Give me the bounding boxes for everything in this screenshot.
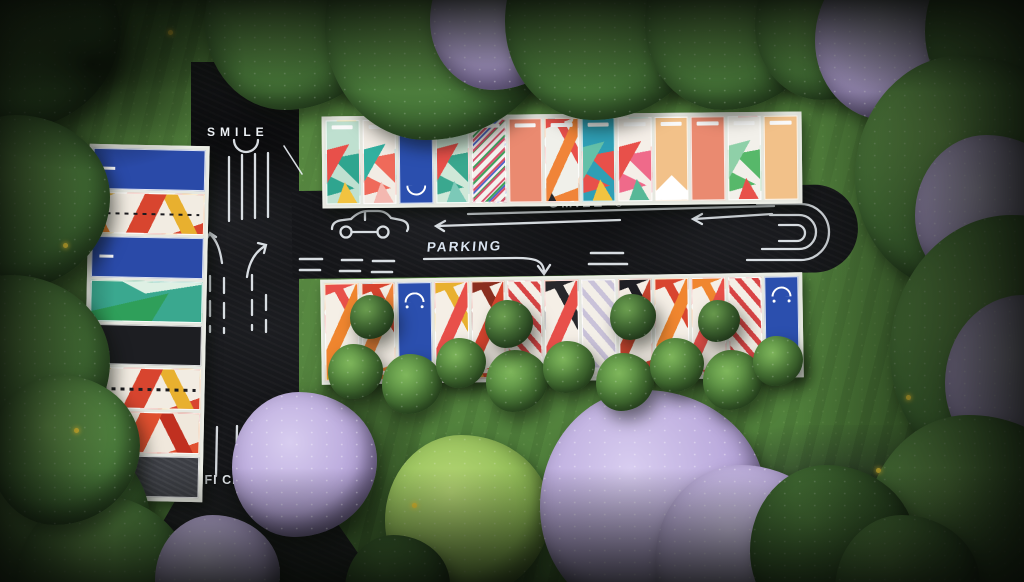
parking-space	[472, 119, 506, 203]
parking-space	[89, 323, 202, 366]
parking-lot-aerial-scene: SMILE SMILE☺ PARKING CIFI CENTER	[0, 0, 1024, 582]
cifi-center-road-text: CIFI CENTER	[190, 473, 279, 487]
parking-space	[434, 281, 469, 379]
parking-space	[88, 367, 201, 410]
parking-space	[92, 192, 205, 235]
parking-space	[581, 117, 615, 201]
parking-space	[399, 119, 433, 203]
parking-space	[86, 455, 199, 498]
parking-space	[654, 278, 689, 376]
parking-space	[362, 120, 396, 204]
hatchfoot-marking	[402, 363, 430, 376]
dashline-marking	[98, 211, 199, 216]
parking-space	[471, 281, 506, 379]
parking-space	[618, 279, 653, 377]
tick-marking	[101, 167, 115, 170]
smile-road-text: SMILE	[207, 125, 269, 139]
parking-space	[544, 280, 579, 378]
parking-row-bottom	[320, 272, 804, 385]
parking-column-left	[82, 144, 209, 502]
dashline-marking	[94, 387, 195, 392]
parking-space	[326, 120, 360, 204]
frown-icon	[771, 286, 791, 296]
smile-icon	[406, 185, 426, 195]
parking-space	[87, 411, 200, 454]
parking-row-top	[322, 111, 803, 208]
parking-space	[618, 117, 652, 201]
parking-space	[91, 236, 204, 279]
parking-space	[361, 283, 396, 381]
parking-space	[545, 118, 579, 202]
parking-space	[324, 283, 359, 381]
parking-space	[654, 117, 688, 201]
parking-space	[764, 276, 799, 374]
parking-road-text: PARKING	[426, 238, 503, 254]
frown-icon	[405, 292, 425, 302]
parking-space	[508, 118, 542, 202]
parking-space	[508, 280, 543, 378]
parking-space	[727, 116, 761, 200]
parking-space	[398, 282, 433, 380]
parking-space	[728, 277, 763, 375]
pavement-patch	[600, 425, 1024, 582]
parking-space	[691, 116, 725, 200]
parking-space	[691, 277, 726, 375]
parking-space	[581, 279, 616, 377]
parking-space	[90, 279, 203, 322]
parking-space	[435, 119, 469, 203]
parking-space	[93, 148, 206, 191]
parking-space	[764, 116, 798, 200]
tick-marking	[99, 255, 113, 258]
